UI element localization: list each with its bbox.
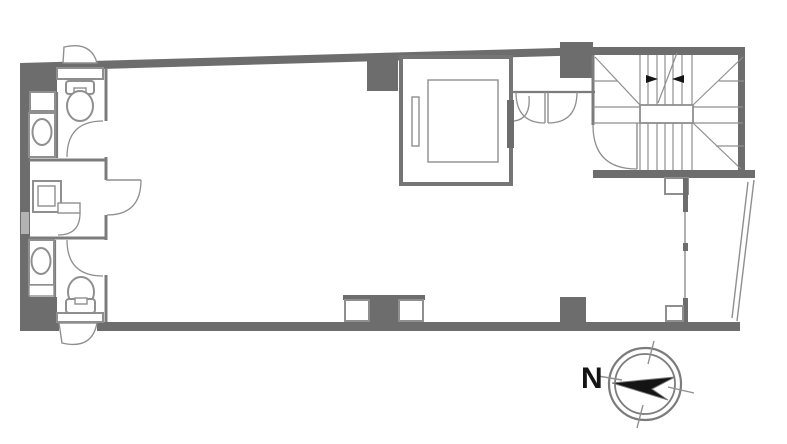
- floor-plan-page: N: [0, 0, 787, 444]
- lower-wc: [57, 240, 103, 322]
- hall-door-arc: [107, 180, 141, 215]
- exterior-door-top-icon: [63, 46, 97, 63]
- shelf-box: [30, 92, 55, 111]
- double-door-arc-right: [548, 92, 577, 123]
- balcony-corner-block: [738, 170, 755, 178]
- closet-box: [58, 203, 80, 213]
- mop-sink-inner: [38, 186, 55, 206]
- stair-treads-lower: [640, 123, 692, 170]
- pillar-bottom-mid: [560, 297, 586, 322]
- sink-basin-icon-2: [32, 248, 51, 274]
- elevator: [401, 57, 529, 184]
- bottom-wall-main: [97, 322, 740, 331]
- stair-door-arc: [593, 125, 637, 169]
- left-wall-window: [21, 212, 29, 234]
- toilet-bowl-icon: [67, 91, 93, 121]
- north-label: N: [581, 362, 603, 395]
- stair-arrow-right-icon: [646, 75, 658, 83]
- sink-basin-icon: [33, 119, 52, 145]
- stair-break-line: [658, 53, 677, 103]
- pillar-bottom-left: [28, 297, 57, 322]
- cistern-shelf: [57, 68, 103, 79]
- stair-top-wall: [593, 47, 745, 55]
- balcony-notch-box: [666, 306, 683, 321]
- niche-left: [345, 300, 369, 321]
- niche-center-pillar: [369, 295, 399, 322]
- lower-wc-door-arc: [67, 240, 103, 276]
- balcony-wall-seg2: [683, 243, 688, 251]
- stair-bottom-wall: [593, 170, 755, 178]
- closet-door-arc: [58, 213, 80, 235]
- shelf-box-2: [29, 285, 54, 296]
- hall-double-door: [511, 92, 595, 123]
- bottom-wall-left: [20, 322, 59, 331]
- cistern-shelf-2: [57, 313, 103, 322]
- compass-rose: N: [581, 341, 694, 428]
- pillar-top-left: [30, 64, 57, 92]
- outer-walls: [20, 42, 755, 331]
- stair-landing: [640, 105, 693, 123]
- stair-arrow-left-icon: [672, 75, 684, 83]
- exterior-door-bottom-icon: [59, 323, 97, 344]
- utility-room: [33, 180, 141, 235]
- upper-wc-door-arc: [67, 121, 103, 157]
- double-door-arc-left: [516, 92, 545, 123]
- elevator-door: [507, 100, 514, 148]
- upper-wc: [57, 68, 103, 157]
- stair-right-wall: [738, 47, 745, 178]
- bottom-wall-features: [343, 295, 425, 322]
- pillar-stair-left: [560, 42, 593, 78]
- elevator-counterweight-slot: [412, 97, 419, 146]
- floor-plan-drawing: N: [0, 0, 787, 444]
- pillar-elevator-left: [367, 57, 398, 91]
- niche-right: [399, 300, 423, 321]
- upper-vanity: [29, 92, 55, 157]
- toilet-tank-notch-2: [75, 298, 87, 304]
- lower-vanity: [29, 240, 54, 296]
- balcony-wall-seg1: [683, 178, 688, 212]
